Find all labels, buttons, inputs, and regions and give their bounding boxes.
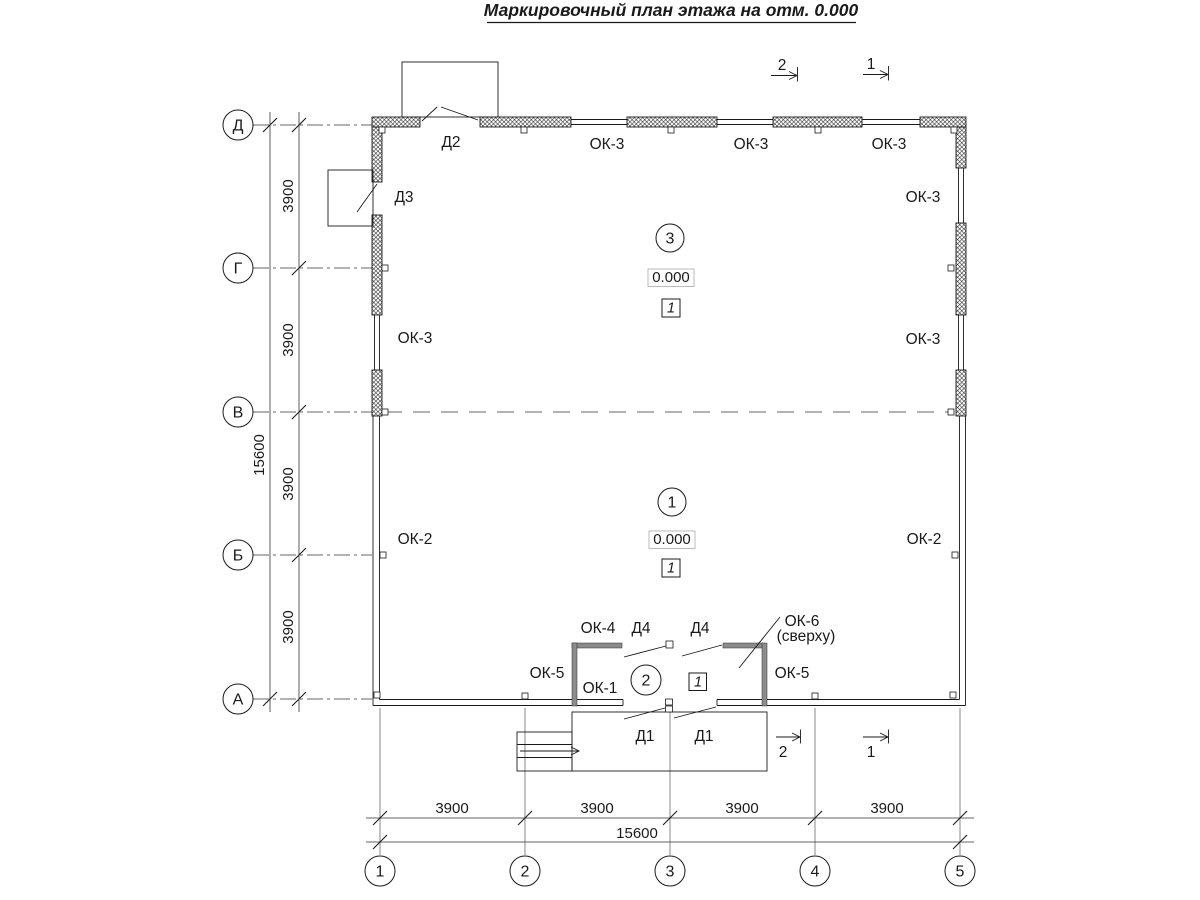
label-door-d4-right: Д4 [690,620,709,637]
door-d1-hinge-lower [666,706,673,712]
label-window-ok3-right: ОК-3 [906,331,941,348]
label-window-ok3-left: ОК-3 [398,330,433,347]
dim-bottom-4: 3900 [870,800,903,817]
label-door-d3: Д3 [394,189,413,206]
label-window-ok2-left: ОК-2 [398,531,433,548]
room-2-finish-mark: 1 [694,675,702,691]
label-door-d1-right: Д1 [694,728,713,745]
axis-row-a: А [233,692,244,709]
drawing-sheet: Маркировочный план этажа на отм. 0.000 [0,0,1200,900]
dim-bottom-total: 15600 [616,825,658,842]
label-window-ok3-top-2: ОК-3 [734,136,769,153]
axis-col-2: 2 [521,864,530,881]
axis-col-1: 1 [376,864,385,881]
room-2-number: 2 [642,673,651,690]
room-1-number: 1 [668,495,677,512]
axis-row-b: Б [233,548,244,565]
dim-bottom-2: 3900 [580,800,613,817]
dim-left-4: 3900 [280,610,297,643]
dim-left-total: 15600 [251,434,268,476]
label-door-d1-left: Д1 [635,728,654,745]
floor-plan-drawing: Маркировочный план этажа на отм. 0.000 [0,0,1200,900]
label-window-ok2-right: ОК-2 [907,531,942,548]
page-title: Маркировочный план этажа на отм. 0.000 [484,0,859,20]
label-window-ok1: ОК-1 [583,680,618,697]
label-window-ok4: ОК-4 [581,620,616,637]
axis-row-v: В [233,405,244,422]
door-d1-hinge-upper [666,699,673,705]
axis-row-d: Д [233,118,244,135]
dim-left-2: 3900 [280,323,297,356]
room-3-finish-mark: 1 [667,301,675,317]
dim-left-1: 3900 [280,179,297,212]
label-door-d4-left: Д4 [631,620,650,637]
label-window-ok3-top-1: ОК-3 [590,136,625,153]
svg-text:2: 2 [778,57,787,74]
dim-left-3: 3900 [280,467,297,500]
svg-text:1: 1 [867,56,876,73]
label-door-d2: Д2 [441,134,460,151]
axis-col-3: 3 [666,864,675,881]
axis-row-g: Г [234,261,243,278]
label-window-ok6-note: (сверху) [777,628,836,645]
room-1-elevation: 0.000 [653,531,691,548]
label-window-ok3-top-3: ОК-3 [872,136,907,153]
axis-col-5: 5 [956,864,965,881]
room-1-finish-mark: 1 [667,561,675,577]
label-window-ok5-left: ОК-5 [530,665,565,682]
label-window-ok5-right: ОК-5 [775,665,810,682]
door-d4-hinge [666,641,673,648]
svg-text:1: 1 [867,744,876,761]
paper-background [0,0,1200,900]
dim-bottom-3: 3900 [725,800,758,817]
dim-bottom-1: 3900 [435,800,468,817]
room-3-elevation: 0.000 [652,269,690,286]
axis-col-4: 4 [811,864,820,881]
svg-text:2: 2 [779,744,788,761]
label-window-ok3-right-upper: ОК-3 [906,189,941,206]
drawing-title: Маркировочный план этажа на отм. 0.000 [484,0,859,23]
room-3-number: 3 [666,231,675,248]
